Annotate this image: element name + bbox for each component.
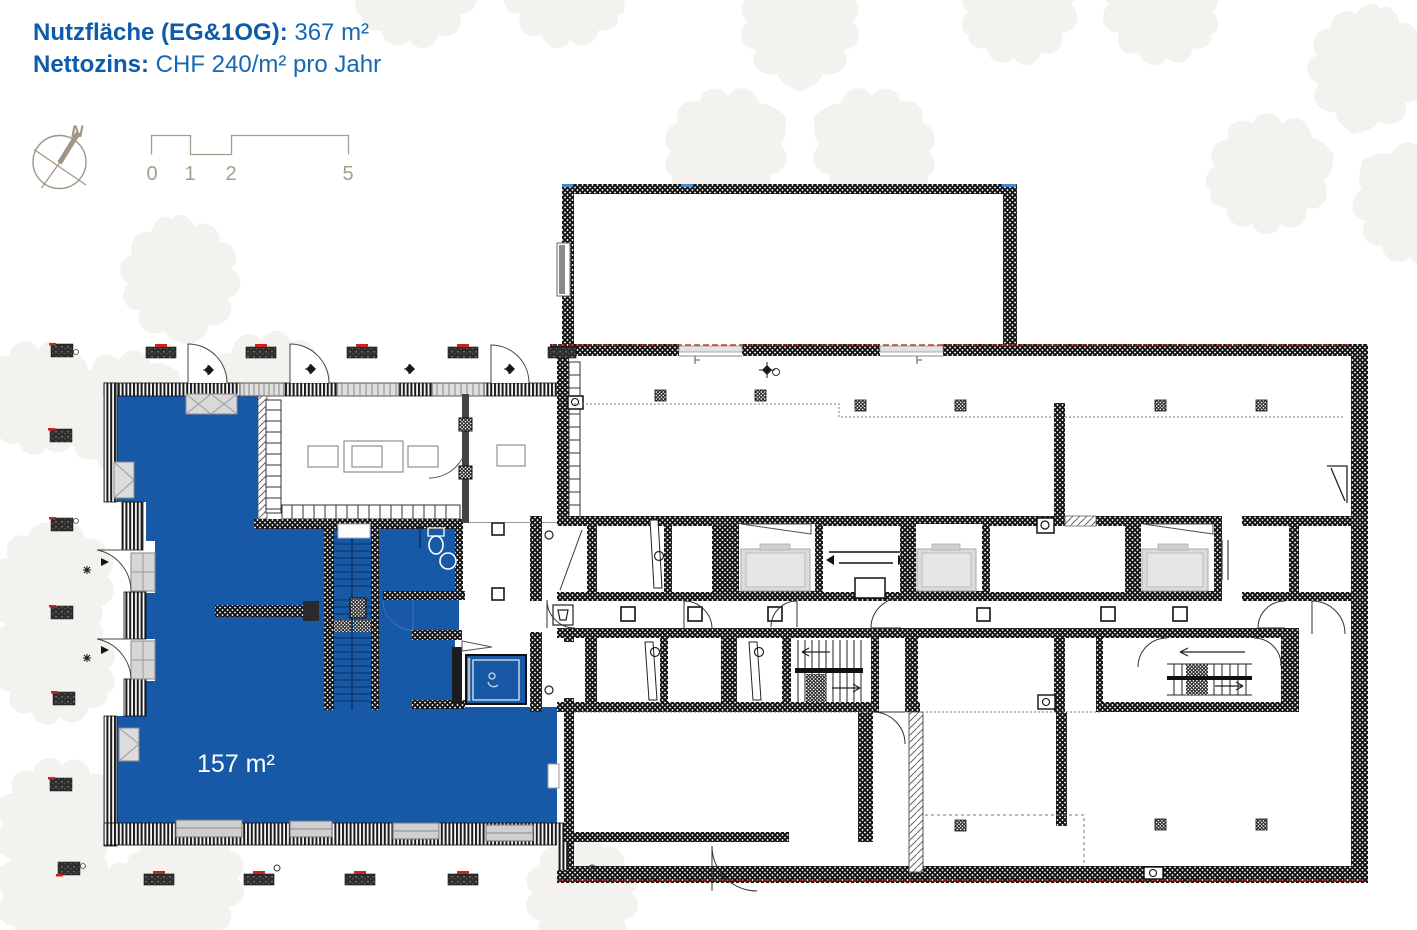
svg-text:Nutzfläche (EG&1OG): 367 m²: Nutzfläche (EG&1OG): 367 m²: [33, 19, 369, 46]
svg-text:157 m²: 157 m²: [197, 750, 275, 778]
svg-text:0: 0: [146, 163, 157, 185]
svg-text:1: 1: [184, 163, 195, 185]
svg-text:5: 5: [342, 163, 353, 185]
svg-text:Nettozins: CHF 240/m² pro Jahr: Nettozins: CHF 240/m² pro Jahr: [33, 51, 381, 78]
svg-text:N: N: [71, 122, 84, 141]
svg-text:2: 2: [225, 163, 236, 185]
